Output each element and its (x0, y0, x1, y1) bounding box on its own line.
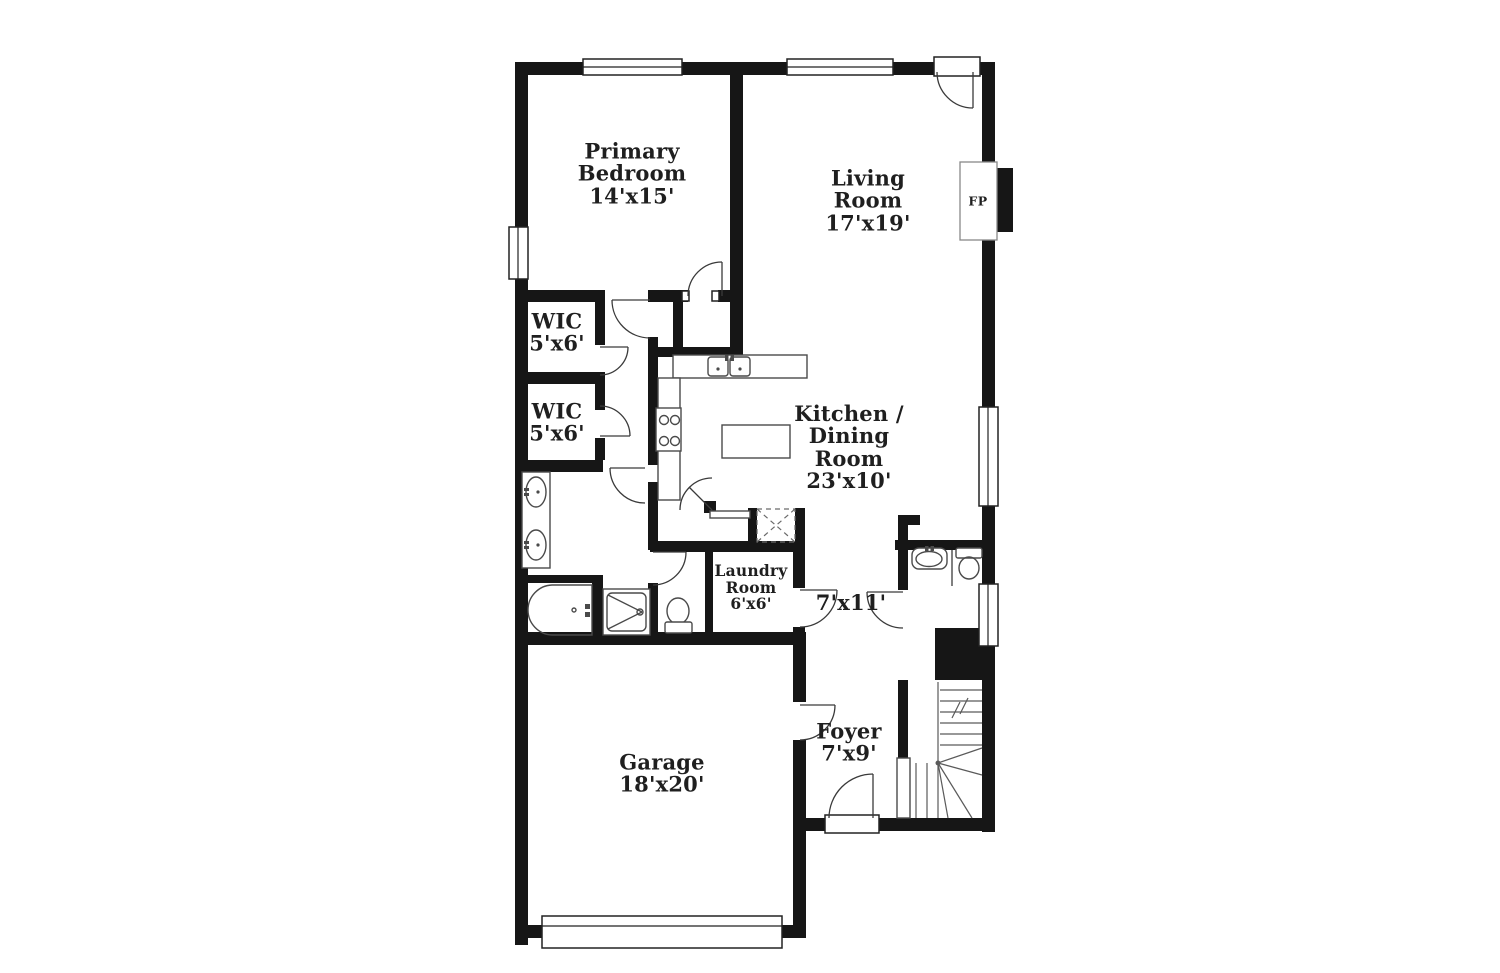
bathtub (528, 585, 592, 635)
toilet-primary (665, 598, 692, 633)
pantry-wall-right (795, 508, 805, 546)
floor-plan-canvas: Primary Bedroom 14'x15' Living Room 17'x… (0, 0, 1500, 973)
kitchen-island (722, 425, 790, 458)
room-label-kitchen-dining: Kitchen / Dining Room 23'x10' (792, 403, 906, 493)
front-door (825, 774, 879, 833)
fireplace-bump (995, 168, 1013, 232)
floor-plan-drawing (0, 0, 1500, 973)
kitchen-half-wall (710, 511, 750, 518)
half-bath-fixtures (912, 546, 982, 586)
wic-upper-door (600, 347, 628, 375)
window-dining-right (979, 407, 998, 506)
room-label-primary-bedroom: Primary Bedroom 14'x15' (557, 140, 707, 207)
bedroom-door (682, 262, 722, 301)
entry-door-top (934, 57, 980, 108)
room-label-wic-upper: WIC 5'x6' (512, 311, 602, 356)
pantry-closet (757, 509, 795, 542)
toilet-half-bath (956, 548, 982, 579)
stove (656, 408, 681, 451)
window-bedroom-left (509, 227, 528, 279)
wic-lower-door (600, 406, 630, 436)
kitchen-hall-door (680, 478, 712, 510)
room-label-hallway: 7'x11' (796, 592, 906, 614)
garage-door (542, 916, 782, 948)
room-label-laundry: Laundry Room 6'x6' (703, 563, 799, 613)
primary-bath-door (610, 468, 645, 503)
toilet-room-door (653, 552, 686, 585)
room-label-living-room: Living Room 17'x19' (812, 167, 924, 234)
half-bath-sink (912, 546, 947, 569)
room-label-garage: Garage 18'x20' (587, 752, 737, 797)
window-living-top (787, 59, 893, 75)
shower (603, 589, 650, 635)
hall-corridor-door (612, 300, 650, 338)
staircase (897, 682, 982, 818)
kitchen-fixtures (656, 355, 807, 518)
room-label-wic-lower: WIC 5'x6' (512, 401, 602, 446)
fireplace-label: FP (968, 194, 987, 209)
window-bedroom-top (583, 59, 682, 75)
room-label-foyer: Foyer 7'x9' (789, 721, 909, 766)
window-hall-right (979, 584, 998, 646)
